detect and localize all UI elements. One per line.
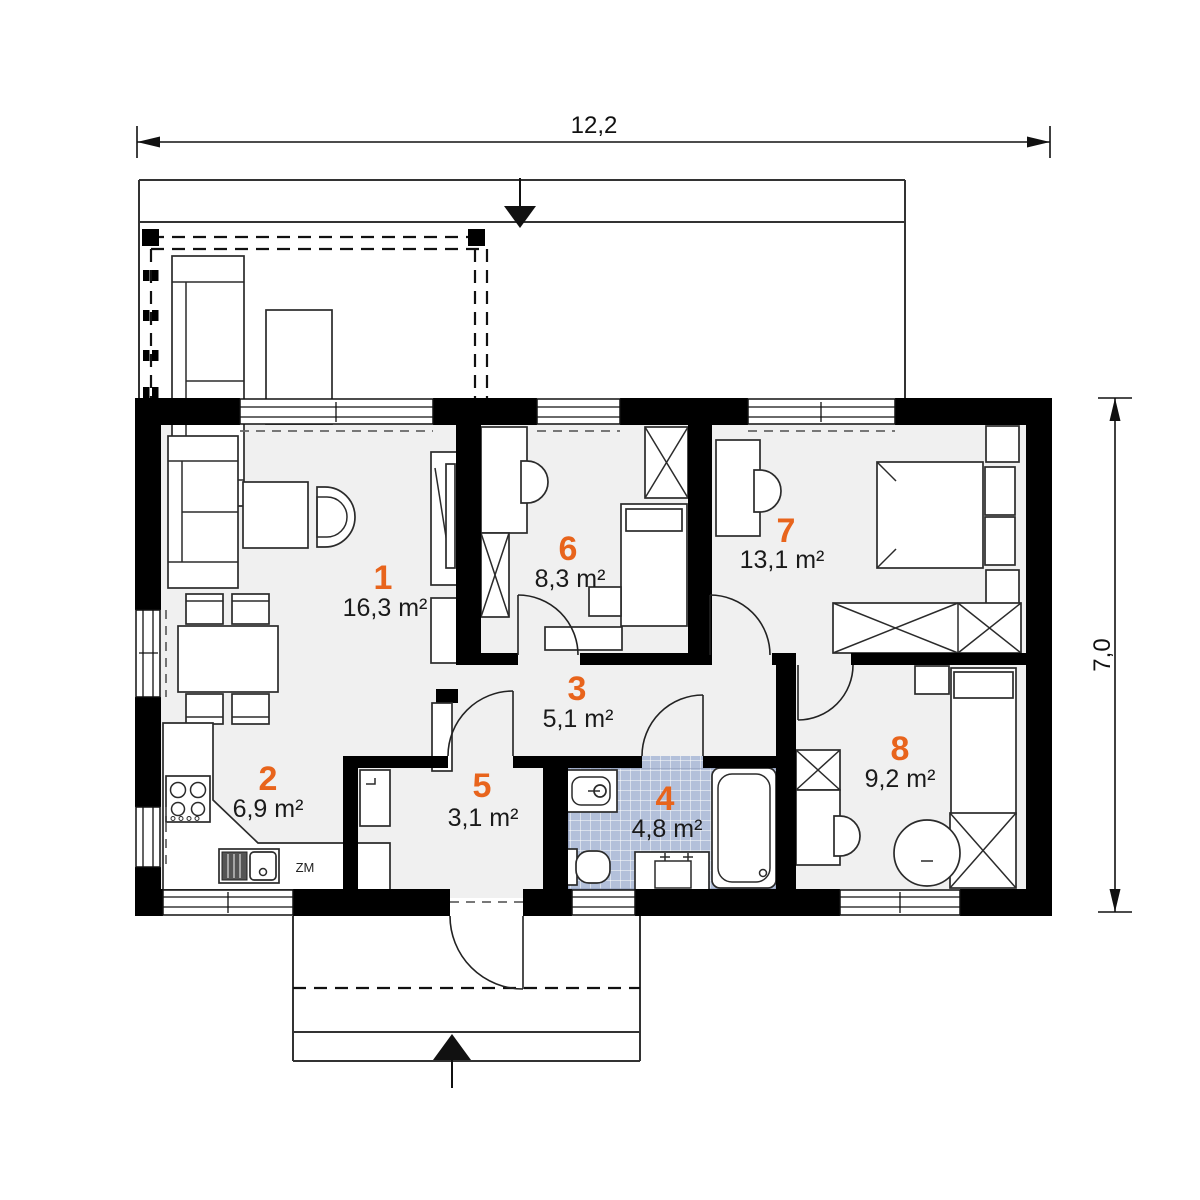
room-3-area: 5,1 m² [543, 705, 614, 733]
window [748, 399, 895, 424]
room-1-area: 16,3 m² [343, 594, 428, 622]
entrance-porch [293, 916, 640, 1088]
dimension-right-value: 7,0 [1089, 638, 1116, 671]
room-7-number: 7 [777, 512, 796, 550]
hall-wall-stub [436, 689, 458, 703]
stove [166, 776, 210, 822]
window [136, 610, 160, 697]
room-6-area: 8,3 m² [535, 565, 606, 593]
room-7-area: 13,1 m² [740, 546, 825, 574]
window [163, 890, 293, 915]
toilet [562, 849, 610, 885]
window [136, 807, 160, 867]
bathtub [712, 768, 776, 888]
bathroom-sink [565, 770, 617, 812]
window [840, 890, 960, 915]
dimension-right: 7,0 [1089, 398, 1132, 912]
nightstand [986, 426, 1019, 462]
room-2-number: 2 [259, 760, 278, 798]
kitchen-sink [219, 849, 279, 883]
roof-direction-arrow-icon [504, 178, 536, 228]
room-1-number: 1 [374, 559, 393, 597]
dishwasher-label: ZM [296, 860, 315, 875]
bench [545, 627, 622, 650]
window [537, 399, 620, 424]
terrace-post [142, 229, 159, 246]
room-5-number: 5 [473, 767, 492, 805]
window [572, 890, 635, 915]
livingroom-sofa [168, 436, 238, 588]
room-8-number: 8 [891, 730, 910, 768]
pillow [985, 517, 1015, 565]
pillow [985, 467, 1015, 515]
entrance-door [450, 902, 523, 989]
window [240, 399, 433, 424]
coffee-table [243, 482, 308, 548]
room-2-area: 6,9 m² [233, 795, 304, 823]
dimension-top-value: 12,2 [571, 112, 618, 139]
room-6-number: 6 [559, 530, 578, 568]
nightstand [915, 666, 949, 694]
floor-plan-page: 1 16,3 m² 2 6,9 m² 3 5,1 m² 4 4,8 m² 5 3… [0, 0, 1200, 1200]
tv-cabinet [431, 452, 457, 585]
terrace-post [468, 229, 485, 246]
desk [481, 427, 527, 533]
room-5-area: 3,1 m² [448, 804, 519, 832]
floor-plan-drawing: 1 16,3 m² 2 6,9 m² 3 5,1 m² 4 4,8 m² 5 3… [0, 0, 1200, 1200]
dimension-top: 12,2 [137, 112, 1050, 158]
room-8-area: 9,2 m² [865, 765, 936, 793]
kitchen-tall-cabinet [360, 770, 390, 826]
pouf [894, 820, 960, 886]
room-4-number: 4 [656, 780, 675, 818]
room-4-area: 4,8 m² [632, 815, 703, 843]
room-3-number: 3 [568, 670, 587, 708]
wardrobe [833, 603, 1021, 653]
washing-machine [635, 852, 709, 890]
